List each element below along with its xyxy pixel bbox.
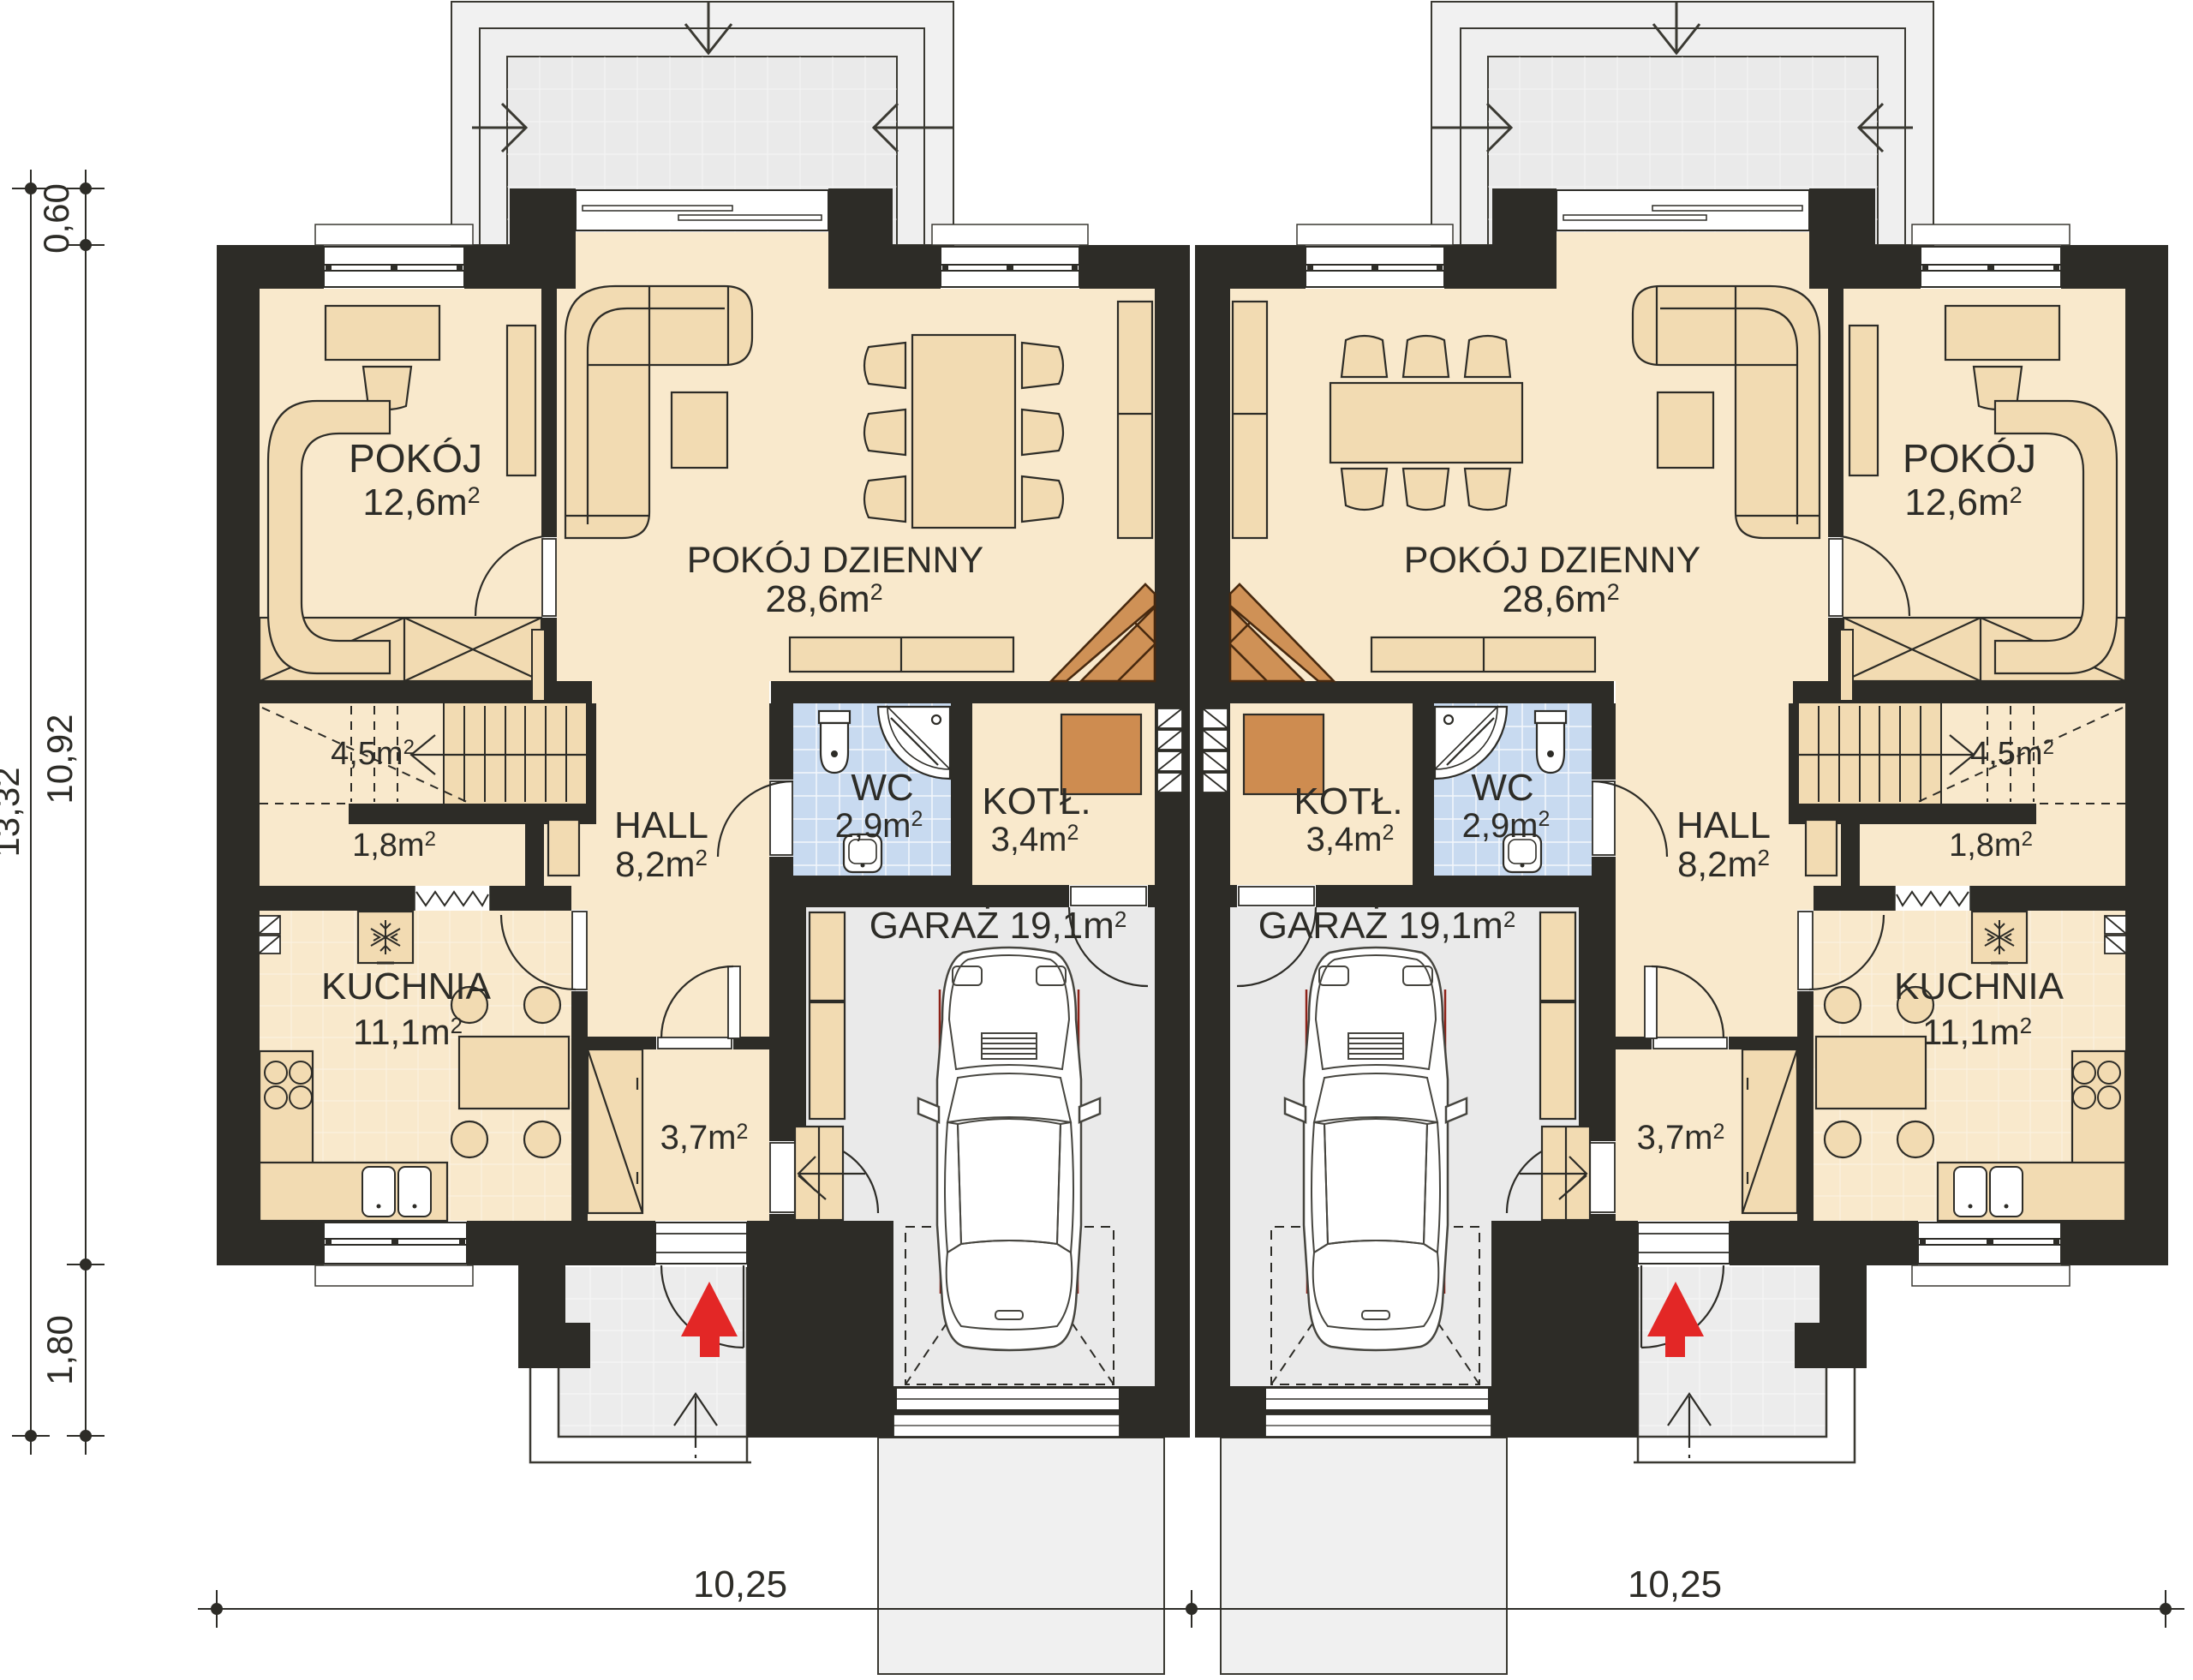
svg-text:28,6m2: 28,6m2 — [765, 578, 882, 620]
svg-text:8,2m2: 8,2m2 — [1677, 844, 1770, 884]
svg-text:11,1m2: 11,1m2 — [1922, 1012, 2032, 1052]
svg-text:3,4m2: 3,4m2 — [1306, 821, 1395, 858]
svg-text:11,1m2: 11,1m2 — [353, 1012, 463, 1052]
svg-text:WC: WC — [1471, 767, 1533, 809]
svg-text:13,32: 13,32 — [0, 767, 27, 857]
svg-text:POKÓJ: POKÓJ — [349, 436, 482, 481]
svg-text:28,6m2: 28,6m2 — [1502, 578, 1619, 620]
svg-text:POKÓJ DZIENNY: POKÓJ DZIENNY — [687, 540, 983, 581]
svg-text:3,7m2: 3,7m2 — [660, 1119, 749, 1157]
svg-text:4,5m2: 4,5m2 — [331, 736, 415, 772]
svg-text:GARAŻ 19,1m2: GARAŻ 19,1m2 — [1258, 905, 1516, 947]
svg-text:POKÓJ: POKÓJ — [1903, 436, 2036, 481]
svg-text:1,8m2: 1,8m2 — [352, 828, 436, 864]
svg-text:KUCHNIA: KUCHNIA — [1894, 966, 2065, 1007]
svg-text:2,9m2: 2,9m2 — [1462, 807, 1551, 845]
svg-text:3,4m2: 3,4m2 — [991, 821, 1079, 858]
svg-text:KUCHNIA: KUCHNIA — [321, 966, 492, 1007]
svg-text:HALL: HALL — [614, 804, 708, 846]
svg-text:8,2m2: 8,2m2 — [615, 844, 708, 884]
svg-text:12,6m2: 12,6m2 — [362, 481, 480, 523]
svg-text:2,9m2: 2,9m2 — [835, 807, 923, 845]
svg-text:WC: WC — [851, 767, 913, 809]
svg-text:0,60: 0,60 — [36, 183, 76, 254]
svg-text:GARAŻ 19,1m2: GARAŻ 19,1m2 — [869, 905, 1127, 947]
svg-text:1,80: 1,80 — [39, 1315, 80, 1385]
svg-text:10,92: 10,92 — [39, 714, 80, 804]
svg-text:1,8m2: 1,8m2 — [1949, 828, 2033, 864]
svg-text:10,25: 10,25 — [1628, 1563, 1722, 1605]
svg-text:HALL: HALL — [1676, 804, 1771, 846]
svg-text:KOTŁ.: KOTŁ. — [1294, 780, 1402, 822]
svg-text:12,6m2: 12,6m2 — [1904, 481, 2022, 523]
svg-text:4,5m2: 4,5m2 — [1970, 736, 2054, 772]
svg-text:3,7m2: 3,7m2 — [1637, 1119, 1725, 1157]
svg-text:10,25: 10,25 — [693, 1563, 787, 1605]
svg-text:KOTŁ.: KOTŁ. — [982, 780, 1091, 822]
svg-text:POKÓJ DZIENNY: POKÓJ DZIENNY — [1404, 540, 1700, 581]
